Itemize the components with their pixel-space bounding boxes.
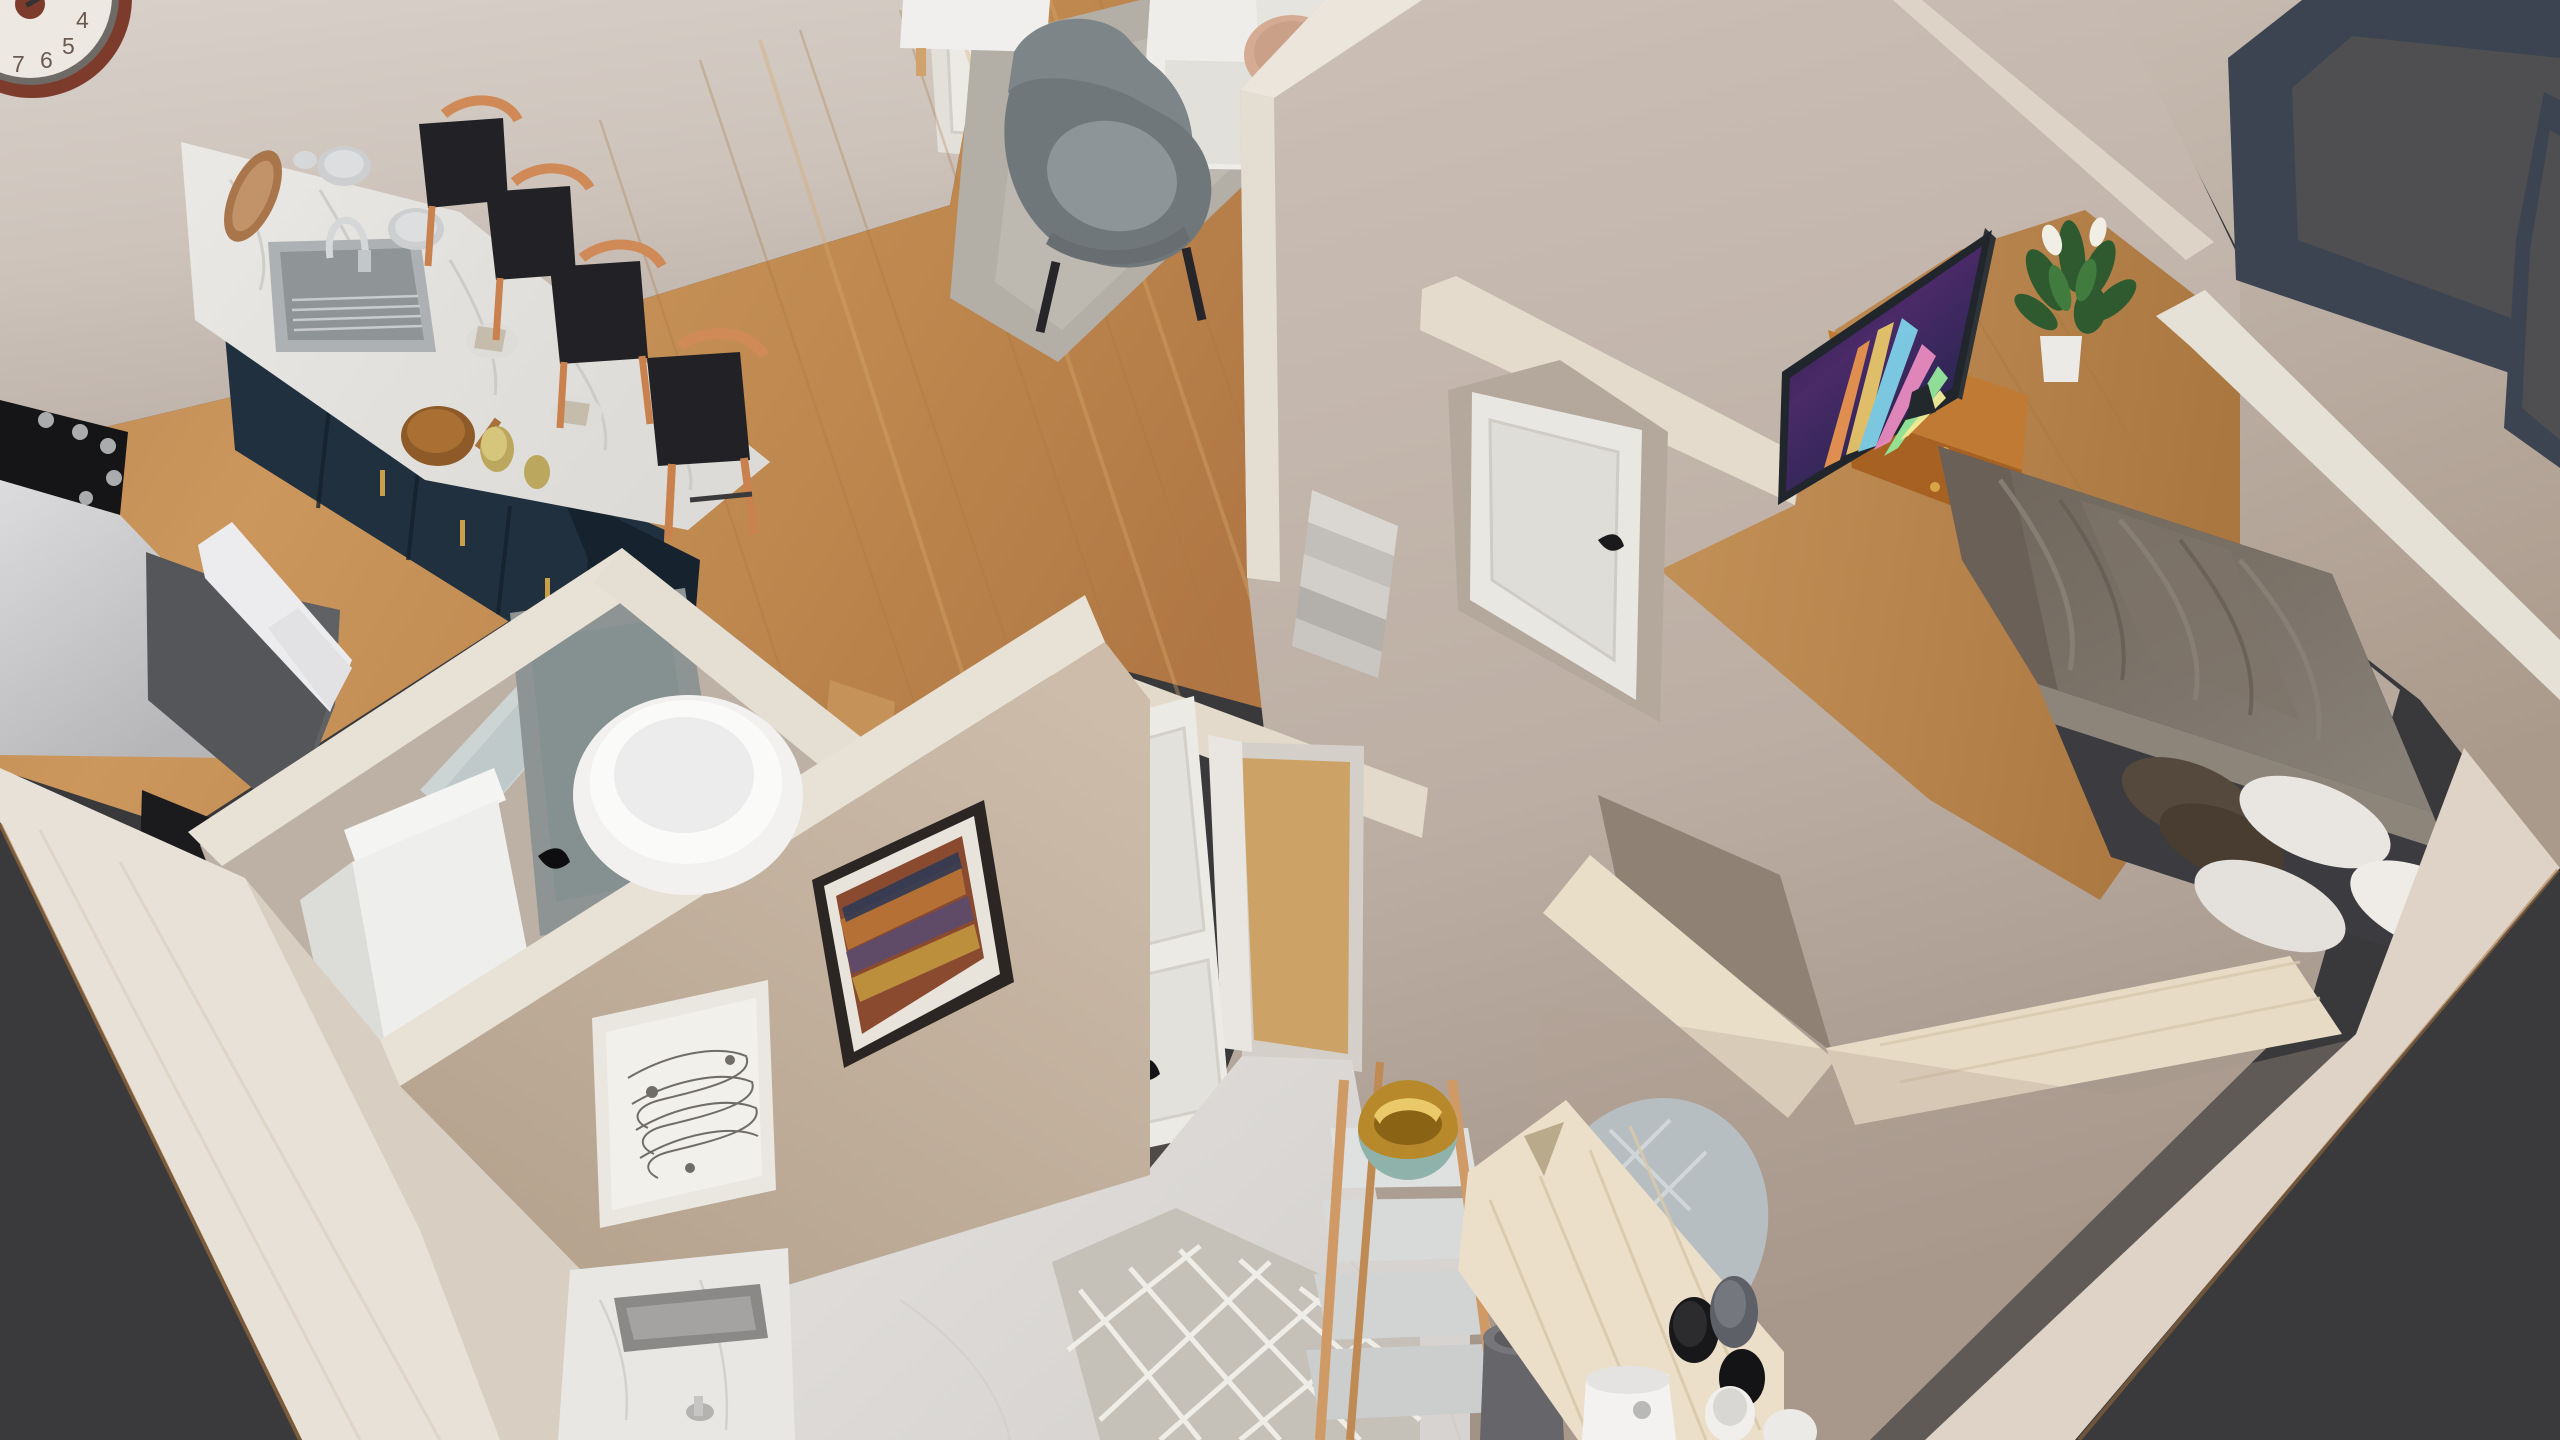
svg-text:4: 4: [76, 7, 89, 33]
svg-text:5: 5: [62, 33, 75, 59]
svg-text:6: 6: [40, 47, 53, 73]
svg-text:7: 7: [12, 51, 25, 77]
